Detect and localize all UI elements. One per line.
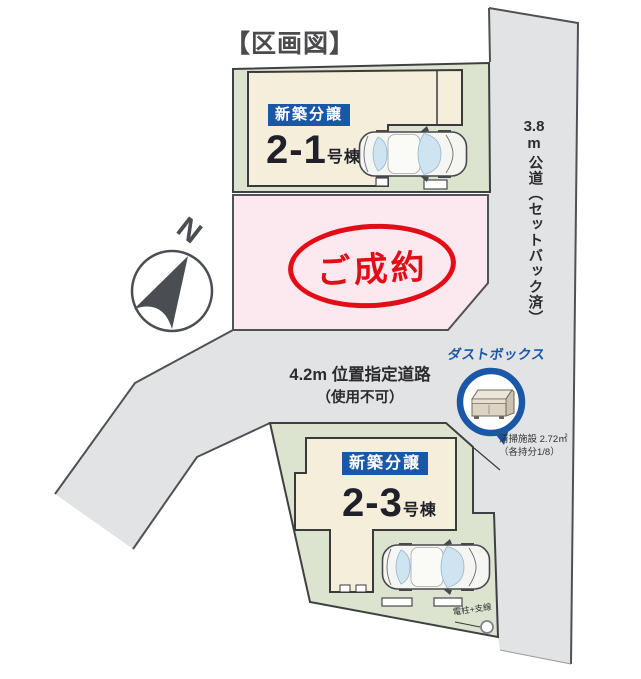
lot-2-3-number-value: 2-3 <box>342 487 403 520</box>
utility-pole-icon <box>481 621 493 633</box>
designated-road-name: 4.2m 位置指定道路 <box>250 361 470 385</box>
entrance-step <box>356 585 366 592</box>
public-road-label: 3.8 m 公道（セットバック済） <box>516 118 552 325</box>
lot-2-3-number-suffix: 号棟 <box>403 503 437 520</box>
cleaning-facility-share: （各持分1/8） <box>499 447 568 460</box>
road-edge <box>489 8 490 62</box>
entrance-step <box>340 585 350 592</box>
lot-2-1-number-suffix: 号棟 <box>327 150 361 167</box>
page-title: 【区画図】 <box>225 24 355 60</box>
public-road-name: 公道（セットバック済） <box>526 155 543 326</box>
entrance-step <box>376 178 388 186</box>
designated-road-label: 4.2m 位置指定道路 （使用不可） <box>250 361 470 407</box>
car-2-3-icon <box>383 539 490 595</box>
public-road-unit: m <box>527 135 540 152</box>
public-road-width: 3.8 <box>524 118 545 135</box>
plot-map-drawing <box>0 0 641 679</box>
cleaning-facility-area: 清掃施設 2.72㎡ <box>499 434 568 447</box>
lot-2-1-number: 2-1 号棟 <box>266 134 361 167</box>
cleaning-facility-note: 清掃施設 2.72㎡ （各持分1/8） <box>499 434 568 460</box>
plot-map: 【区画図】 N 新築分譲 2-1 号棟 ご成約 4.2m 位置指定道路 （使用不… <box>0 0 641 679</box>
parking-marker <box>382 598 412 606</box>
lot-2-3-number: 2-3 号棟 <box>342 487 437 520</box>
lot-2-1-badge: 新築分譲 <box>268 104 350 126</box>
parking-marker <box>424 180 447 189</box>
car-2-1-icon <box>360 126 467 182</box>
designated-road-note: （使用不可） <box>250 386 470 407</box>
compass-icon <box>132 251 212 331</box>
lot-2-1-number-value: 2-1 <box>266 134 327 167</box>
dust-box-label: ダストボックス <box>447 343 547 363</box>
lot-2-3-badge: 新築分譲 <box>342 452 428 475</box>
